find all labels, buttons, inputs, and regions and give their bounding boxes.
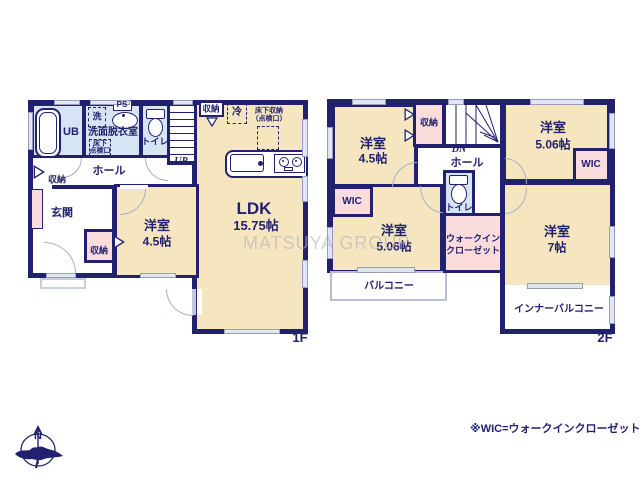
faucet-icon bbox=[122, 114, 125, 117]
washing-machine-label: 洗 bbox=[92, 112, 101, 121]
toilet-bowl-icon-1f bbox=[148, 118, 163, 137]
window bbox=[609, 226, 615, 258]
window bbox=[357, 267, 415, 273]
washroom-label: 洗面脱衣室 bbox=[88, 128, 138, 139]
walkin-closet-label2: クローゼット bbox=[446, 246, 500, 255]
entrance-porch bbox=[40, 278, 86, 289]
stairs-dn-label: DN bbox=[452, 145, 466, 156]
shoe-cabinet bbox=[31, 189, 43, 229]
hall-2f-label: ホール bbox=[451, 158, 484, 170]
window bbox=[527, 283, 583, 289]
stair-side-storage-label: 収納 bbox=[202, 105, 219, 114]
bedroom1-2f-size: 4.5帖 bbox=[359, 153, 388, 166]
toilet-bowl-icon-2f bbox=[451, 184, 467, 204]
window bbox=[609, 113, 615, 149]
folding-door-icon-closet-1f bbox=[113, 235, 125, 249]
closet-1f-label: 収納 bbox=[90, 246, 108, 255]
door-arc-ldk bbox=[166, 289, 193, 316]
burner-dot bbox=[282, 160, 284, 162]
hall-storage-label: 収納 bbox=[48, 175, 66, 184]
balcony-label: バルコニー bbox=[364, 282, 414, 293]
underfloor-hatch-line2: 点検口 bbox=[90, 147, 111, 154]
bedroom2-2f-size: 5.06帖 bbox=[535, 139, 570, 152]
bedroom1-2f-name: 洋室 bbox=[360, 137, 386, 151]
window bbox=[302, 260, 308, 288]
wic-right-label: WIC bbox=[581, 160, 600, 171]
bedroom2-2f-name: 洋室 bbox=[540, 121, 566, 135]
window bbox=[352, 99, 386, 105]
stairs-2f-steps bbox=[446, 105, 500, 144]
floor2-tag: 2F bbox=[597, 331, 612, 345]
inner-balcony-label: インナーバルコニー bbox=[514, 305, 604, 316]
room-label-ub: UB bbox=[63, 127, 79, 139]
compass-icon: N bbox=[10, 418, 66, 476]
entrance-door bbox=[46, 273, 76, 278]
window bbox=[224, 329, 280, 334]
window bbox=[609, 296, 615, 324]
window bbox=[28, 112, 33, 150]
stove-burner-icon bbox=[292, 157, 302, 167]
folding-door-icon-storage-2f bbox=[404, 129, 415, 142]
ldk-door-gap bbox=[197, 289, 202, 315]
window bbox=[173, 100, 193, 105]
compass-n-glyph: N bbox=[34, 430, 42, 442]
bedroom-1f-size: 4.5帖 bbox=[143, 236, 172, 249]
window bbox=[302, 119, 308, 157]
burner-dot bbox=[295, 160, 297, 162]
ldk-name: LDK bbox=[237, 200, 272, 218]
floor1-tag: 1F bbox=[292, 331, 307, 345]
bedroom4-2f-name: 洋室 bbox=[544, 225, 570, 239]
bedroom4-2f-size: 7帖 bbox=[548, 242, 567, 255]
floor-storage-label-2: （点検口） bbox=[252, 115, 287, 122]
wic-left-label: WIC bbox=[342, 197, 361, 208]
folding-door-icon-stair-storage bbox=[205, 117, 219, 127]
window bbox=[54, 100, 80, 105]
walkin-closet-label1: ウォークイン bbox=[446, 234, 500, 243]
entrance-label: 玄関 bbox=[51, 208, 73, 220]
window bbox=[448, 99, 464, 105]
window bbox=[530, 99, 584, 105]
refrigerator-label: 冷 bbox=[232, 108, 242, 119]
kitchen-faucet-icon bbox=[258, 161, 263, 166]
bedroom-1f-name: 洋室 bbox=[144, 219, 170, 233]
pipe-space-label: PS bbox=[117, 101, 128, 109]
floor-plan-canvas: UB 洗 PS 洗面脱衣室 床下 点検口 トイレ UP ホール 収納 洋室 4.… bbox=[0, 0, 640, 480]
floor-storage-box bbox=[257, 126, 279, 150]
folding-door-icon-storage-2f bbox=[404, 108, 415, 121]
watermark: MATSUYA GROUP bbox=[243, 233, 410, 254]
storage-2f-label: 収納 bbox=[420, 118, 438, 127]
bathtub-icon bbox=[35, 108, 61, 158]
wic-footnote: ※WIC=ウォークインクローゼット bbox=[470, 420, 640, 436]
toilet-label-1f: トイレ bbox=[141, 137, 168, 146]
stove-burner-icon bbox=[279, 157, 289, 167]
window bbox=[327, 127, 333, 159]
window bbox=[302, 176, 308, 202]
ldk-size: 15.75帖 bbox=[233, 219, 279, 233]
stairs-up-label: UP bbox=[174, 157, 187, 168]
folding-door-icon-hall-storage bbox=[33, 165, 45, 179]
floor-storage-label-1: 床下収納 bbox=[255, 107, 283, 114]
window bbox=[140, 273, 176, 278]
toilet-label-2f: トイレ bbox=[445, 203, 472, 212]
stove-grill bbox=[284, 167, 293, 171]
hall-label-1f: ホール bbox=[93, 166, 126, 178]
